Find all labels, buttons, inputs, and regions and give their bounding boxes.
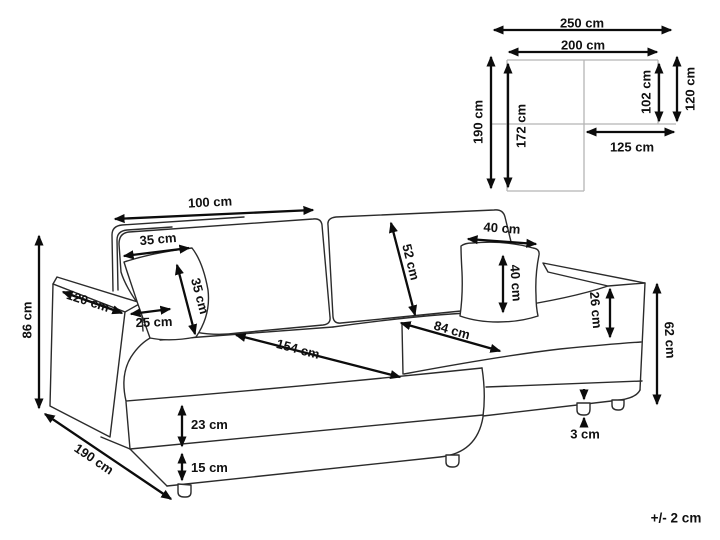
right-base-seam [486, 381, 642, 387]
label-armrest-width: 25 cm [135, 314, 172, 330]
label-right-width: 125 cm [610, 140, 654, 155]
label-overall-height: 86 cm [20, 302, 35, 339]
label-side-height: 62 cm [662, 321, 679, 359]
diagram-canvas: 250 cm 200 cm 190 cm 172 cm 102 cm 120 c… [0, 0, 720, 540]
label-armrest-above-seat: 26 cm [587, 291, 605, 329]
arrow-backrest-width [115, 210, 313, 219]
right-armrest-side-edge [640, 283, 645, 390]
leg-front-left [178, 484, 191, 497]
label-cushion-height: 23 cm [191, 417, 228, 432]
chaise-front-left-edge [126, 402, 130, 449]
tolerance-note: +/- 2 cm [651, 511, 702, 526]
label-large-pillow-width: 40 cm [483, 219, 521, 237]
label-large-pillow-height: 40 cm [507, 264, 525, 302]
label-leg-height: 3 cm [570, 427, 600, 442]
sofa-dimension-diagram: 250 cm 200 cm 190 cm 172 cm 102 cm 120 c… [0, 0, 720, 540]
chaise-left-corner [124, 337, 152, 401]
label-backrest-width: 100 cm [188, 193, 233, 210]
label-inner-depth: 172 cm [514, 104, 529, 148]
chaise-front-top-edge [126, 368, 482, 401]
label-back-width: 200 cm [561, 38, 605, 53]
large-pillow [460, 242, 539, 322]
label-total-depth: 190 cm [471, 100, 486, 144]
label-total-width: 250 cm [560, 16, 604, 31]
label-chaise-seat-length: 154 cm [275, 336, 321, 362]
leg-front-middle [446, 455, 459, 467]
leg-back-left [577, 403, 590, 415]
right-armrest-top [543, 263, 645, 286]
label-base-height: 15 cm [191, 460, 228, 475]
label-right-inner-depth: 102 cm [639, 70, 654, 114]
label-small-pillow-width: 35 cm [139, 230, 177, 248]
leg-back-right [612, 400, 624, 410]
label-right-depth: 120 cm [683, 67, 698, 111]
right-seat-front-edge [404, 342, 641, 374]
top-view-schematic: 250 cm 200 cm 190 cm 172 cm 102 cm 120 c… [471, 16, 698, 192]
seat-split-line [402, 325, 403, 374]
chaise-right-edge [482, 368, 484, 416]
sofa-drawing [50, 210, 645, 497]
